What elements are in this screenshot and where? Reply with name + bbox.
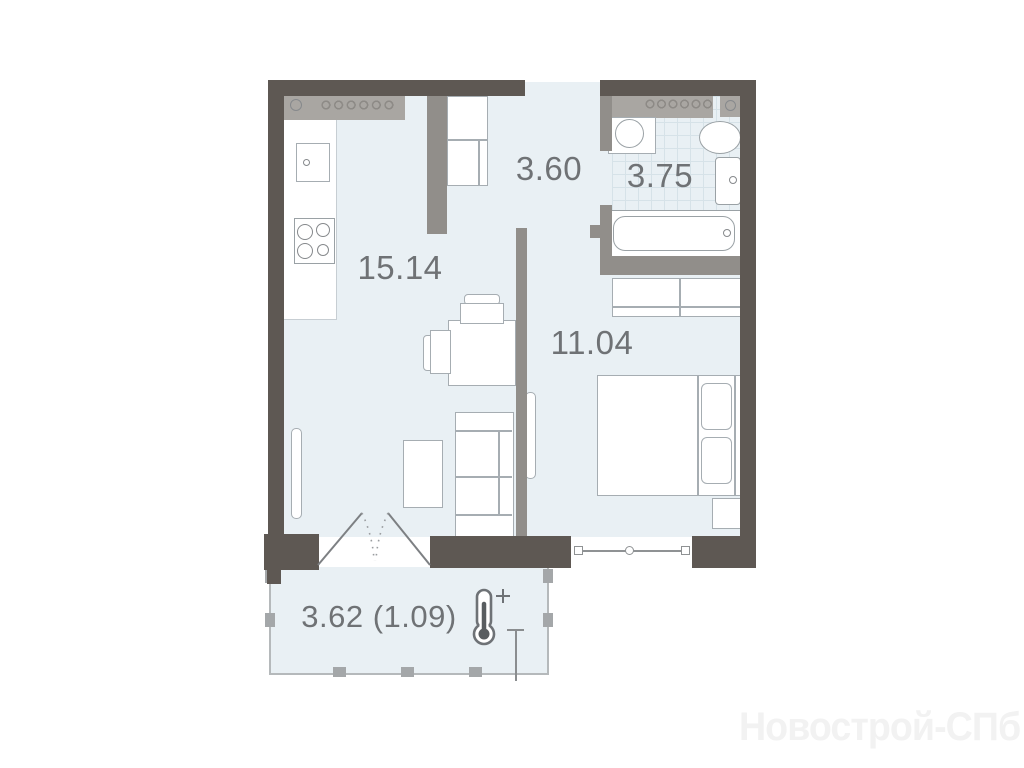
burner-icon [317,244,329,256]
kitchen-sink-circle [290,99,302,111]
door-swing-arc [376,513,388,561]
french-door-swing [300,497,450,575]
chair-seat [430,330,451,374]
sofa-cushion-line [456,476,512,478]
toilet [699,121,741,154]
chair-seat [460,303,504,324]
sofa-back-line [498,430,500,516]
watermark: Новострой-СПб [739,705,1020,750]
hall-wardrobe-divider [447,139,488,141]
room-label-bedroom: 11.04 [551,324,634,362]
vent-circle [725,100,736,111]
bedroom-door-jamb [590,225,600,238]
burner-icon [297,224,313,240]
glazing-post [333,667,346,677]
fridge [296,143,330,182]
glazing-post [469,667,482,677]
bedroom-wardrobe-front-line [612,306,748,308]
window-marker-circle [625,546,634,555]
sink-basin [615,119,644,148]
hall-wardrobe [447,96,488,186]
sofa-armrest-line [456,430,512,432]
pillow [701,383,732,430]
wall-left [268,80,284,540]
drainpipe-cap [507,629,524,631]
wall-right [740,80,756,568]
pillow [701,437,732,484]
bathtub-drain [723,229,731,237]
drainpipe-mark [515,630,517,681]
window-marker [574,546,583,555]
kitchen-dish-rack-circles [320,99,396,111]
washing-machine [715,157,741,205]
floor-plan-canvas: 15.14 3.60 3.75 11.04 3.62 (1.09) Новост… [0,0,1024,768]
bathroom-bottom-wall [600,256,756,275]
sofa-armrest-line [456,514,512,516]
burner-icon [297,243,313,259]
door-leaf [388,513,430,565]
bedroom-wardrobe-divider [679,278,681,317]
wall-bottom-right [692,536,756,568]
door-swing-arc [362,513,374,561]
bed-mattress-line [697,376,699,495]
nightstand [712,498,743,529]
glazing-post [543,613,553,627]
wall-bottom-middle [430,536,571,568]
washing-machine-door [729,176,737,184]
hall-wardrobe-divider [478,139,480,186]
glazing-post [543,569,553,583]
bathroom-wall-upper [600,96,612,151]
glazing-post [401,667,414,677]
partition-living-bedroom [516,228,527,537]
burner-icon [316,223,330,237]
window-marker [681,546,690,555]
dining-table [448,320,516,386]
room-label-balcony: 3.62 (1.09) [301,599,456,635]
wall-top-left [268,80,525,96]
room-label-hallway: 3.60 [516,150,582,188]
glazing-post [265,613,275,627]
bed-headboard-line [734,376,736,495]
fridge-handle-icon [303,159,310,166]
bathroom-pipe-circles [644,98,713,110]
door-leaf [318,513,362,565]
floor-entrance-gap [525,82,600,98]
thermometer-plus-icon [462,584,514,654]
bathtub-inner [613,216,735,251]
room-label-bathroom: 3.75 [627,157,693,195]
room-label-kitchen-living: 15.14 [357,249,442,287]
wall-top-right [600,80,756,96]
bathroom-wall-lower [600,205,612,257]
wall-left-stub [267,570,281,584]
partition-kitchen-hall [427,96,447,234]
